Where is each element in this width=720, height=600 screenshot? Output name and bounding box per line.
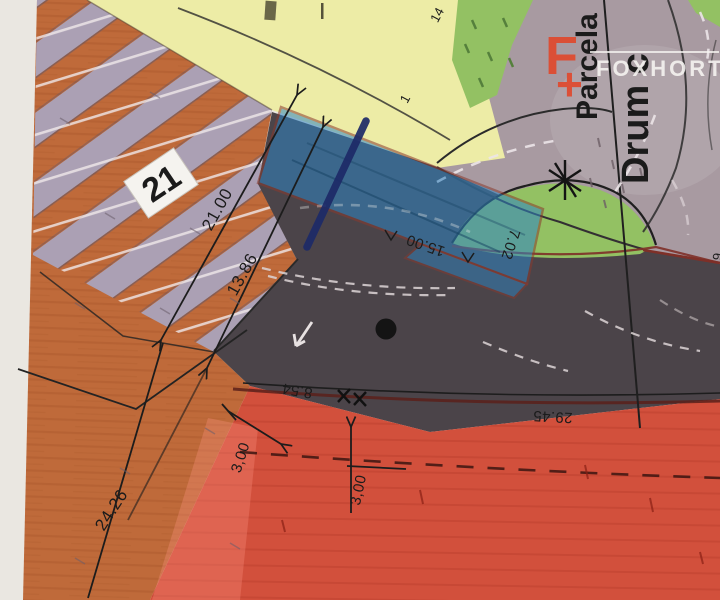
map-canvas: 21 21.00 13.86 24.26 8.54 3,00 3,00 29.4…	[0, 0, 720, 600]
watermark-brand: FOXHORT	[596, 56, 720, 81]
small-bar-symbol	[321, 3, 324, 19]
label-29-45: 29.45	[533, 407, 573, 426]
watermark-plus-glyph: +	[556, 58, 583, 110]
zoning-map-photo: 21 21.00 13.86 24.26 8.54 3,00 3,00 29.4…	[0, 0, 720, 600]
building-symbol	[264, 1, 276, 21]
survey-point-dot	[376, 319, 397, 340]
